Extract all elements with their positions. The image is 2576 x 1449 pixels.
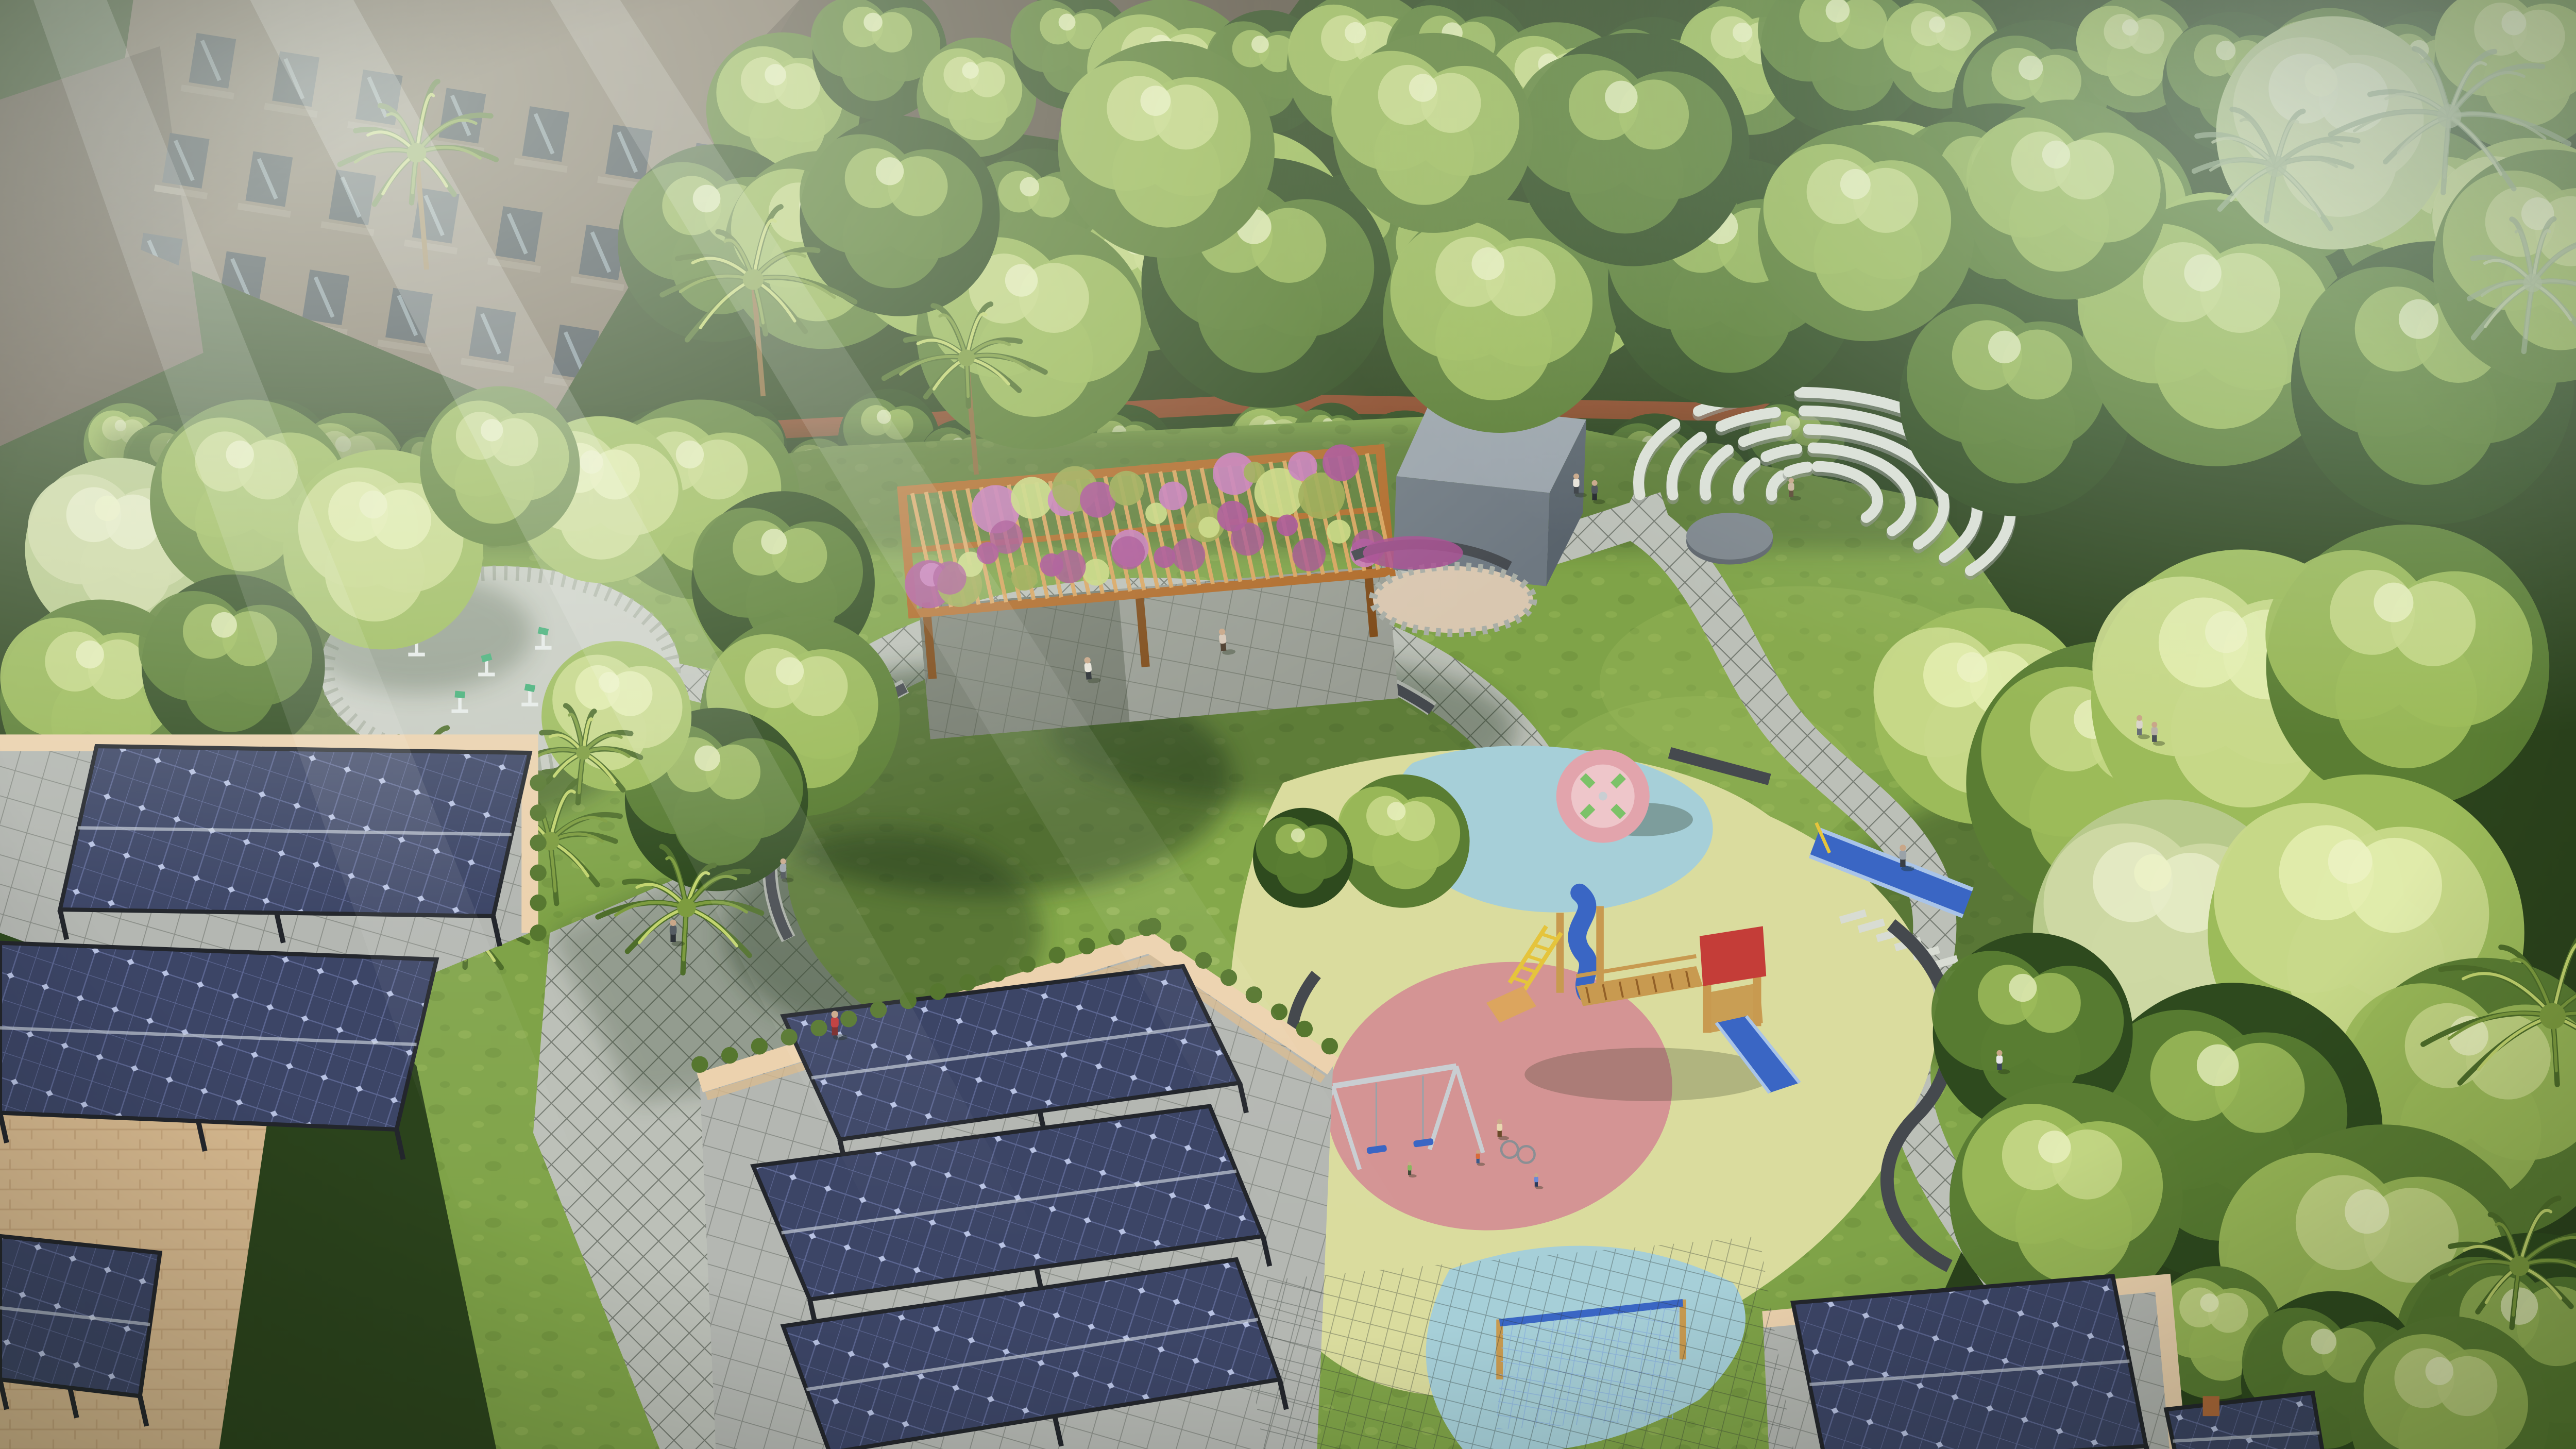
park-aerial-render (0, 0, 2576, 1449)
lighting-effects (0, 0, 2576, 1449)
vignette (0, 0, 2576, 1449)
